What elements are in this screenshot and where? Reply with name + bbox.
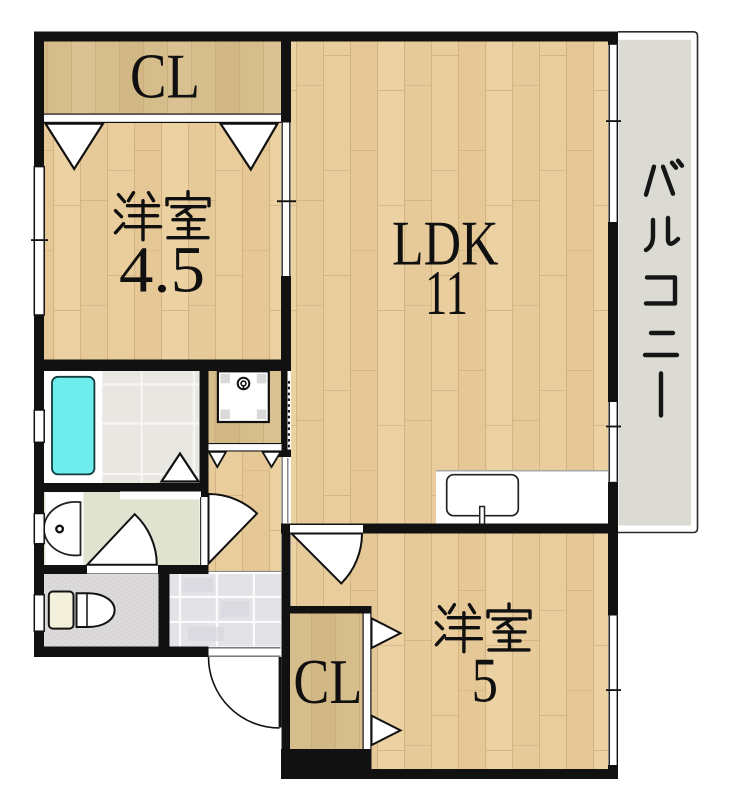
svg-text:4.5: 4.5 bbox=[119, 234, 205, 307]
svg-text:5: 5 bbox=[472, 645, 499, 716]
svg-text:CL: CL bbox=[293, 646, 362, 717]
svg-text:CL: CL bbox=[130, 41, 200, 112]
svg-text:11: 11 bbox=[425, 258, 468, 328]
